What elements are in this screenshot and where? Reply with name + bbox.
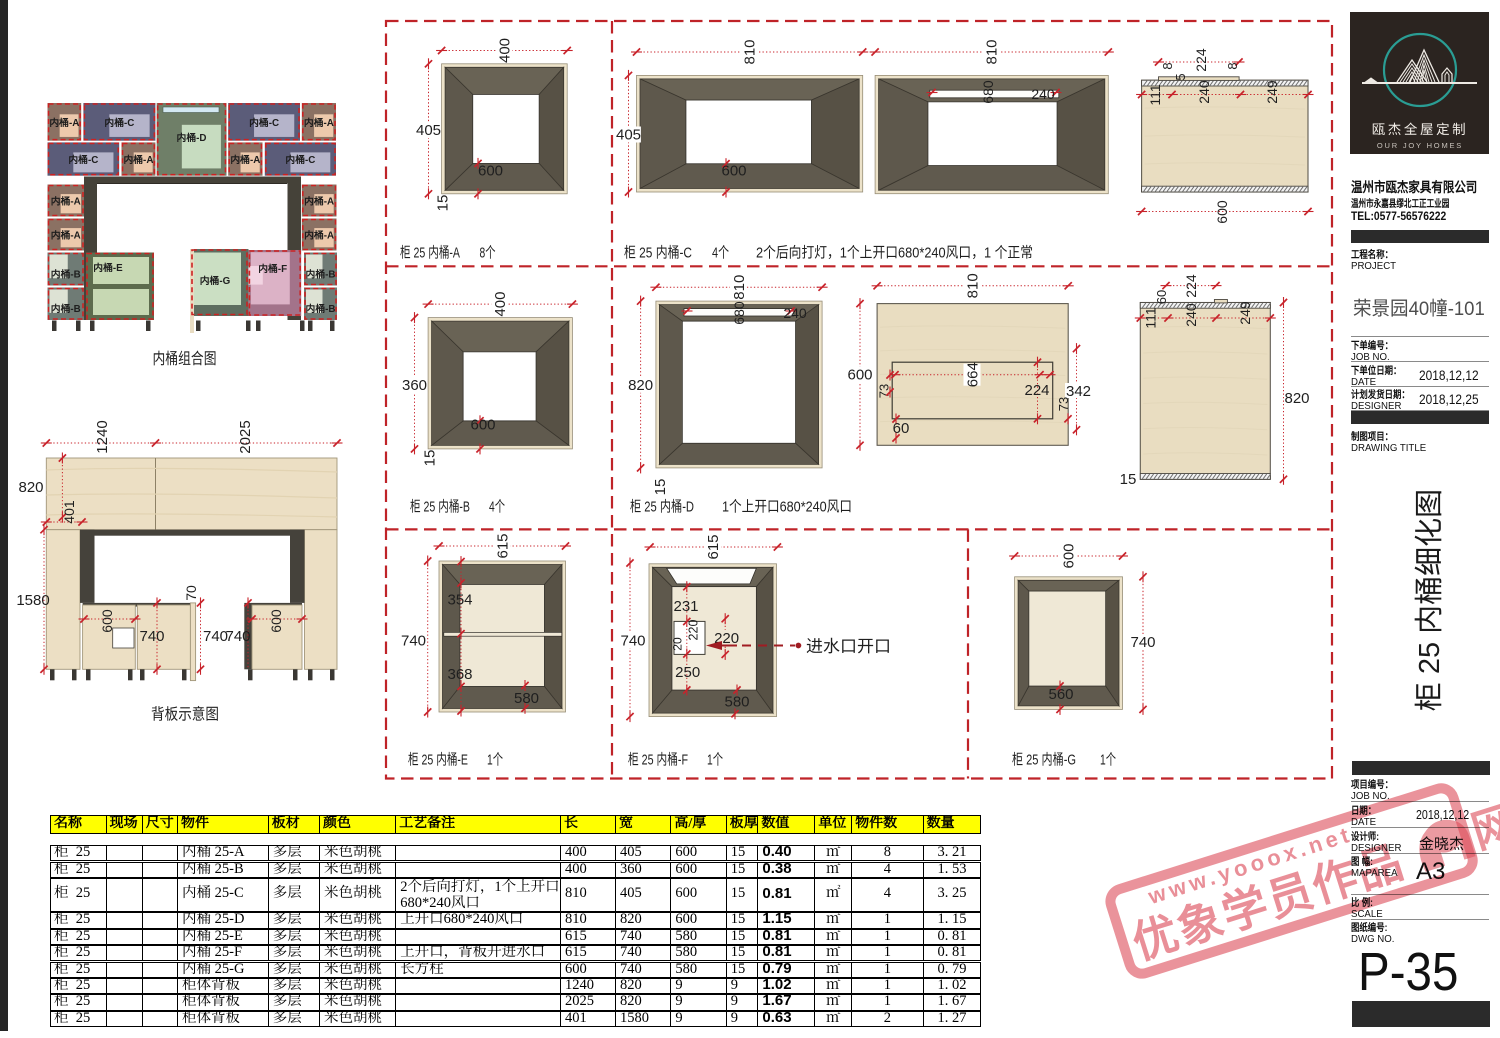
svg-text:内桶-C: 内桶-C [285,154,315,166]
svg-text:740: 740 [401,633,426,650]
svg-text:354: 354 [447,592,472,609]
svg-text:8: 8 [1225,62,1240,69]
svg-text:560: 560 [1048,686,1073,703]
svg-text:600: 600 [478,163,503,180]
svg-text:231: 231 [673,598,698,615]
svg-text:内桶-A: 内桶-A [304,230,334,242]
svg-text:580: 580 [514,690,539,707]
svg-text:400: 400 [492,292,509,317]
svg-text:740: 740 [139,628,164,645]
svg-text:15: 15 [435,195,452,212]
svg-text:1个上开口680*240风口: 1个上开口680*240风口 [722,499,852,516]
svg-text:680: 680 [731,301,747,325]
svg-text:240: 240 [783,305,807,321]
svg-text:810: 810 [984,39,1001,64]
svg-text:内桶-C: 内桶-C [249,117,279,129]
svg-text:内桶-D: 内桶-D [177,132,207,144]
svg-text:20: 20 [671,637,685,651]
svg-text:111: 111 [1143,307,1159,328]
svg-text:405: 405 [616,127,641,144]
svg-text:内桶-F: 内桶-F [258,263,287,275]
svg-text:内桶组合图: 内桶组合图 [153,350,217,368]
svg-text:60: 60 [1154,290,1169,304]
svg-text:405: 405 [416,122,441,139]
svg-text:600: 600 [268,609,284,633]
svg-text:664: 664 [965,362,982,387]
svg-text:8: 8 [1160,62,1175,69]
svg-text:740: 740 [225,628,250,645]
svg-text:740: 740 [620,633,645,650]
svg-text:820: 820 [628,377,653,394]
svg-text:600: 600 [847,367,872,384]
svg-text:8个: 8个 [480,245,496,262]
svg-text:内桶-B: 内桶-B [51,269,81,281]
svg-text:820: 820 [1284,390,1309,407]
svg-text:240: 240 [1196,80,1212,104]
svg-text:15: 15 [652,479,669,496]
svg-text:内桶-A: 内桶-A [304,196,334,208]
svg-text:柜 25 内桶-F: 柜 25 内桶-F [628,752,688,769]
svg-text:224: 224 [1024,382,1049,399]
svg-text:15: 15 [422,450,439,467]
svg-text:内桶-A: 内桶-A [49,117,79,129]
svg-text:249: 249 [1264,80,1280,104]
svg-text:600: 600 [721,163,746,180]
svg-text:1个: 1个 [487,752,503,769]
svg-text:15: 15 [1120,471,1137,488]
svg-text:810: 810 [742,39,759,64]
svg-text:内桶-A: 内桶-A [51,230,81,242]
svg-text:580: 580 [724,694,749,711]
svg-text:内桶-E: 内桶-E [93,262,123,274]
svg-text:600: 600 [1214,200,1230,224]
svg-text:810: 810 [965,273,982,298]
svg-text:600: 600 [1061,543,1078,568]
svg-text:柜 25 内桶-C: 柜 25 内桶-C [624,245,692,262]
svg-text:内桶-A: 内桶-A [123,154,153,166]
svg-text:5: 5 [1173,73,1188,80]
svg-text:615: 615 [494,533,511,558]
svg-text:250: 250 [675,664,700,681]
svg-text:680: 680 [980,80,996,104]
svg-text:2025: 2025 [237,420,254,453]
svg-text:柜 25 内桶-E: 柜 25 内桶-E [408,752,468,769]
svg-text:柜 25 内桶-D: 柜 25 内桶-D [630,499,694,516]
svg-text:224: 224 [1183,274,1199,298]
svg-text:柜 25 内桶-G: 柜 25 内桶-G [1012,752,1076,769]
svg-text:内桶-B: 内桶-B [306,269,336,281]
svg-text:70: 70 [183,585,199,601]
svg-text:600: 600 [470,417,495,434]
svg-text:401: 401 [61,500,77,524]
svg-text:内桶-G: 内桶-G [200,275,231,287]
svg-text:背板示意图: 背板示意图 [151,706,219,724]
svg-text:220: 220 [687,620,701,641]
svg-text:400: 400 [496,38,513,63]
svg-text:810: 810 [731,275,748,300]
svg-text:740: 740 [203,628,228,645]
svg-text:4个: 4个 [489,499,505,516]
svg-text:224: 224 [1193,48,1209,72]
svg-text:240: 240 [1031,86,1055,102]
svg-text:615: 615 [705,534,722,559]
svg-text:1240: 1240 [94,420,111,453]
svg-text:600: 600 [99,609,115,633]
svg-text:内桶-A: 内桶-A [230,154,260,166]
svg-text:111: 111 [1147,84,1163,105]
svg-text:内桶-A: 内桶-A [51,196,81,208]
svg-text:内桶-A: 内桶-A [304,117,334,129]
svg-text:瓯杰全屋定制: 瓯杰全屋定制 [1372,122,1469,137]
svg-text:内桶-B: 内桶-B [51,303,81,315]
svg-text:内桶-C: 内桶-C [68,154,98,166]
svg-text:1个: 1个 [1100,752,1116,769]
svg-text:1580: 1580 [16,592,49,609]
svg-text:820: 820 [18,479,43,496]
svg-text:1个: 1个 [707,752,723,769]
svg-text:进水口开口: 进水口开口 [806,637,891,656]
svg-text:73: 73 [877,384,892,398]
svg-text:368: 368 [447,666,472,683]
svg-text:柜 25 内桶-B: 柜 25 内桶-B [410,499,470,516]
svg-text:2个后向打灯，1个上开口680*240风口，1 个正常: 2个后向打灯，1个上开口680*240风口，1 个正常 [756,245,1033,262]
svg-text:249: 249 [1237,301,1253,325]
svg-text:60: 60 [893,420,910,437]
svg-text:OUR JOY HOMES: OUR JOY HOMES [1377,141,1463,150]
svg-text:360: 360 [402,377,427,394]
svg-text:240: 240 [1183,303,1199,327]
svg-text:740: 740 [1130,634,1155,651]
svg-text:内桶-B: 内桶-B [306,303,336,315]
svg-text:柜 25 内桶-A: 柜 25 内桶-A [400,245,460,262]
svg-text:4个: 4个 [712,245,729,262]
svg-text:73: 73 [1056,397,1071,411]
svg-text:内桶-C: 内桶-C [104,117,134,129]
